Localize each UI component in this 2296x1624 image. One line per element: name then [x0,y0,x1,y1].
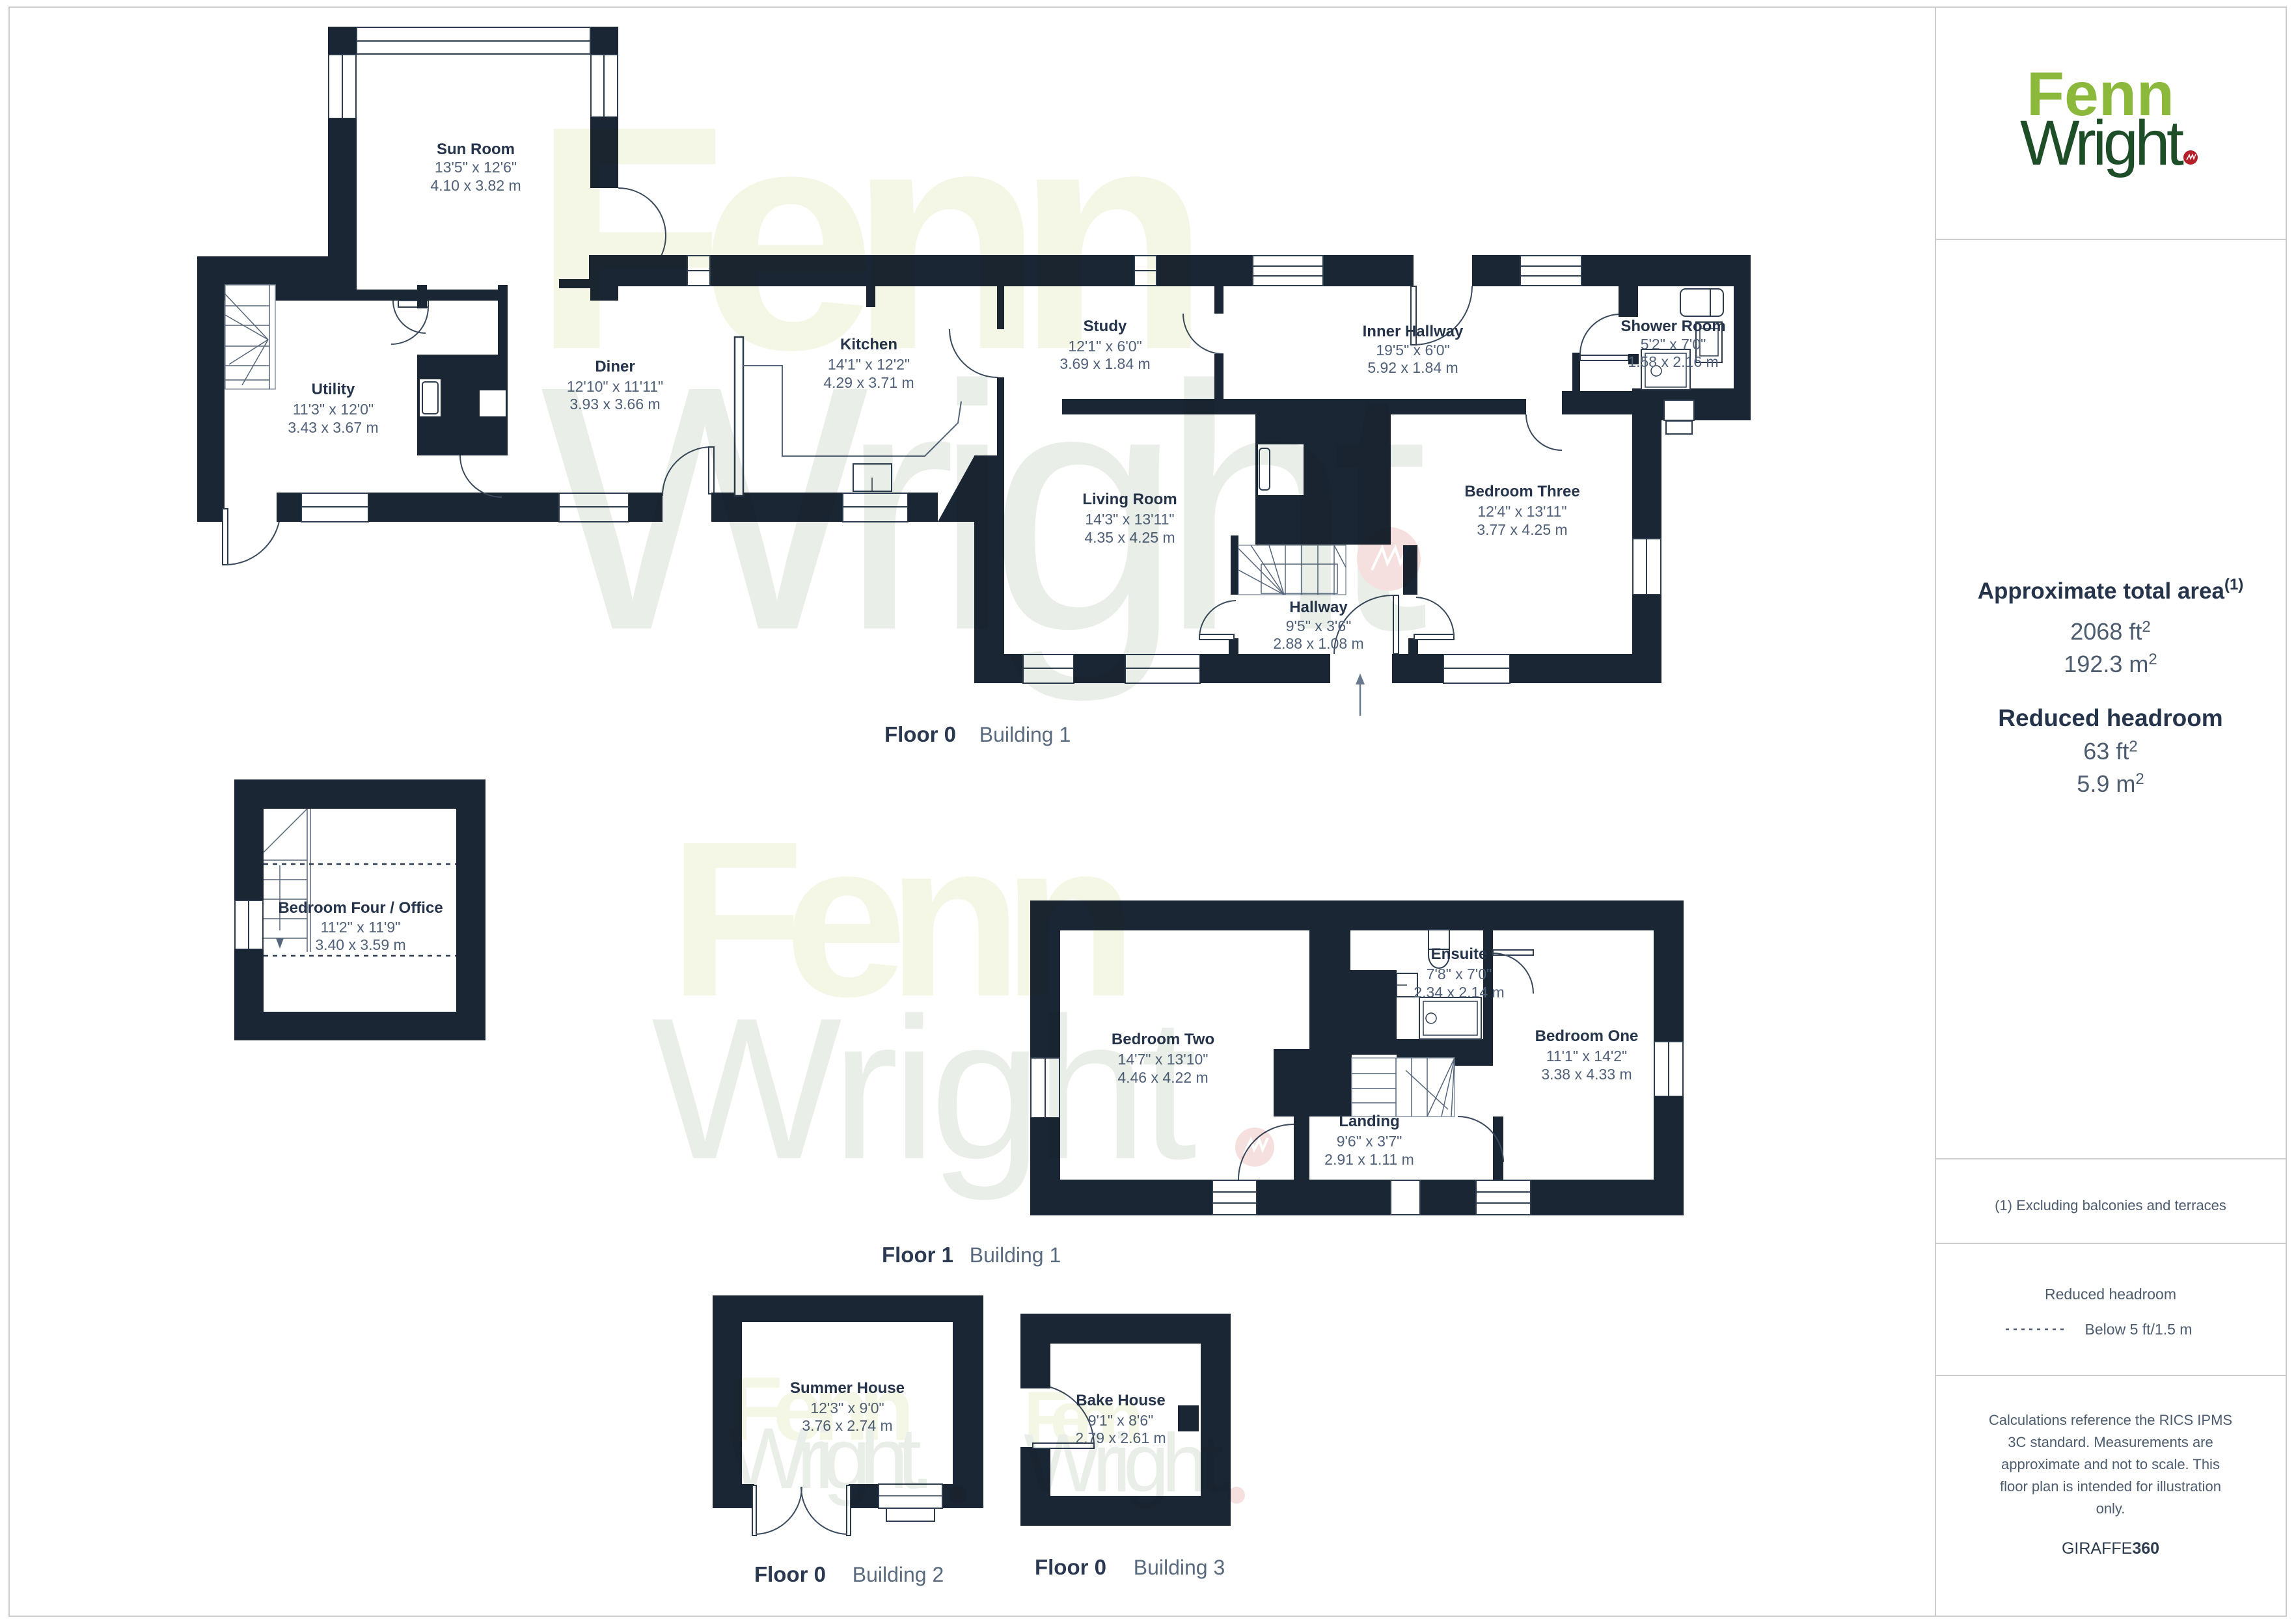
svg-text:Building 3: Building 3 [1134,1556,1225,1579]
svg-text:approximate and not to scale.: approximate and not to scale. This [2001,1456,2220,1472]
svg-text:Wright.: Wright. [728,1411,935,1507]
svg-text:floor plan is intended for ill: floor plan is intended for illustration [2000,1478,2221,1495]
svg-text:Wright.: Wright. [1024,1416,1238,1509]
svg-text:Approximate total area(1): Approximate total area(1) [1978,576,2244,604]
svg-text:only.: only. [2096,1500,2125,1517]
svg-text:7'8" x 7'0": 7'8" x 7'0" [1427,966,1492,982]
svg-text:2068 ft2: 2068 ft2 [2070,618,2150,645]
svg-text:Reduced headroom: Reduced headroom [1998,705,2222,731]
svg-text:Wright: Wright [2020,107,2184,178]
svg-text:Wright: Wright [651,975,1197,1202]
svg-text:Ensuite: Ensuite [1431,945,1488,963]
svg-text:2.91 x 1.11 m: 2.91 x 1.11 m [1324,1151,1414,1168]
svg-text:9'6" x 3'7": 9'6" x 3'7" [1337,1133,1402,1150]
svg-text:Floor 0: Floor 0 [754,1562,826,1586]
svg-text:5'2" x 7'0": 5'2" x 7'0" [1641,336,1706,353]
svg-text:Building 1: Building 1 [970,1243,1061,1267]
svg-text:11'3" x 12'0": 11'3" x 12'0" [293,401,374,418]
svg-text:Floor 0: Floor 0 [884,722,956,746]
svg-text:3.38 x 4.33 m: 3.38 x 4.33 m [1541,1066,1632,1083]
svg-text:Floor 0: Floor 0 [1035,1555,1106,1579]
svg-text:Building 1: Building 1 [979,723,1071,746]
svg-text:192.3 m2: 192.3 m2 [2064,651,2157,677]
svg-text:2.34 x 2.14 m: 2.34 x 2.14 m [1414,984,1504,1001]
svg-text:Sun Room: Sun Room [437,141,515,158]
svg-text:12'4" x 13'11": 12'4" x 13'11" [1477,503,1566,520]
svg-text:Floor 1: Floor 1 [882,1243,953,1267]
svg-text:4.10 x 3.82 m: 4.10 x 3.82 m [430,177,521,194]
svg-text:Reduced headroom: Reduced headroom [2045,1286,2176,1303]
svg-text:11'1" x 14'2": 11'1" x 14'2" [1546,1048,1627,1064]
svg-text:Bedroom Three: Bedroom Three [1464,483,1579,500]
svg-text:Below 5 ft/1.5 m: Below 5 ft/1.5 m [2085,1321,2193,1338]
svg-text:3.43 x 3.67 m: 3.43 x 3.67 m [288,419,378,436]
svg-text:Landing: Landing [1339,1113,1399,1130]
svg-text:13'5" x 12'6": 13'5" x 12'6" [435,159,517,176]
svg-text:Bedroom One: Bedroom One [1535,1027,1639,1045]
svg-text:3.40 x 3.59 m: 3.40 x 3.59 m [315,936,405,953]
svg-text:5.9 m2: 5.9 m2 [2077,770,2144,797]
svg-text:Utility: Utility [312,381,355,398]
svg-text:Building 2: Building 2 [853,1563,944,1586]
svg-text:Bedroom Four / Office: Bedroom Four / Office [278,899,443,917]
svg-text:Calculations reference the RIC: Calculations reference the RICS IPMS [1989,1412,2232,1428]
svg-text:(1) Excluding balconies and te: (1) Excluding balconies and terraces [1995,1197,2226,1213]
svg-text:3.77 x 4.25 m: 3.77 x 4.25 m [1477,521,1567,538]
svg-text:Wright: Wright [540,314,1429,705]
svg-text:Shower Room: Shower Room [1620,318,1725,335]
svg-text:GIRAFFE360: GIRAFFE360 [2062,1539,2159,1558]
svg-text:11'2" x 11'9": 11'2" x 11'9" [321,919,401,936]
svg-text:3C standard. Measurements are: 3C standard. Measurements are [2008,1434,2213,1450]
svg-text:1.58 x 2.16 m: 1.58 x 2.16 m [1628,353,1718,370]
